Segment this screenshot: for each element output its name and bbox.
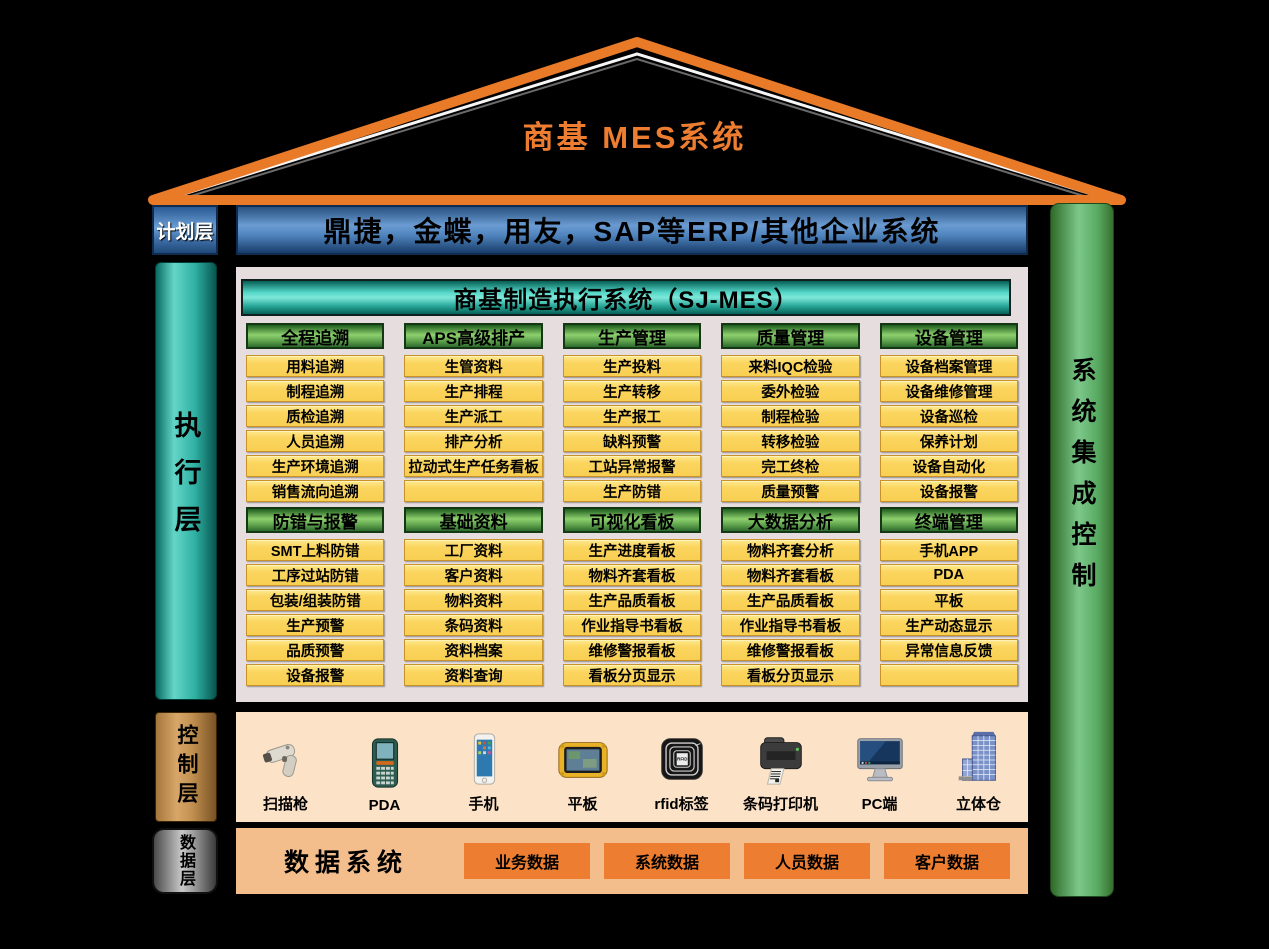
device: PC端: [830, 712, 929, 822]
module-item: 条码资料: [404, 614, 542, 636]
data-box: 业务数据: [464, 843, 590, 879]
module-item: 生产品质看板: [563, 589, 701, 611]
device-label: 手机: [468, 793, 498, 814]
execution-layer-label: 执行层: [155, 262, 217, 700]
device: 平板: [533, 712, 632, 822]
module-item: 生产环境追溯: [246, 455, 384, 477]
module-item: 设备自动化: [880, 455, 1018, 477]
diagram-title: 商基 MES系统: [0, 112, 1269, 157]
module-item: [880, 664, 1018, 686]
module-item: [404, 480, 542, 502]
module-item: SMT上料防错: [246, 539, 384, 561]
group-header: 全程追溯: [246, 323, 384, 349]
barcode-printer-icon: [752, 725, 810, 793]
module-item: 生产品质看板: [721, 589, 859, 611]
device-label: PC端: [862, 793, 898, 814]
device-label: 立体仓: [956, 793, 1001, 814]
system-integration-label: 系统集成控制: [1064, 357, 1100, 603]
module-item: 生产防错: [563, 480, 701, 502]
module-item: 工厂资料: [404, 539, 542, 561]
module-item: 资料档案: [404, 639, 542, 661]
pc-icon: [851, 725, 909, 793]
module-item: 用料追溯: [246, 355, 384, 377]
module-item: 人员追溯: [246, 430, 384, 452]
module-row-1: 全程追溯用料追溯制程追溯质检追溯人员追溯生产环境追溯销售流向追溯APS高级排产生…: [246, 323, 1018, 505]
module-item: 生产预警: [246, 614, 384, 636]
module-item: PDA: [880, 564, 1018, 586]
control-panel: 扫描枪PDA手机平板RFIDrfid标签条码打印机PC端立体仓: [236, 712, 1028, 822]
data-box: 系统数据: [604, 843, 730, 879]
module-item: 设备档案管理: [880, 355, 1018, 377]
device-label: 平板: [567, 793, 597, 814]
module-item: 物料资料: [404, 589, 542, 611]
module-item: 工站异常报警: [563, 455, 701, 477]
planning-layer-label: 计划层: [152, 205, 218, 255]
module-item: 拉动式生产任务看板: [404, 455, 542, 477]
rfid-tag-icon: RFID: [653, 725, 711, 793]
mes-architecture-diagram: 商基 MES系统 计划层 鼎捷，金蝶，用友，SAP等ERP/其他企业系统 执行层…: [0, 0, 1269, 949]
module-group: 全程追溯用料追溯制程追溯质检追溯人员追溯生产环境追溯销售流向追溯: [246, 323, 384, 505]
module-group: 质量管理来料IQC检验委外检验制程检验转移检验完工终检质量预警: [721, 323, 859, 505]
module-item: 客户资料: [404, 564, 542, 586]
data-panel: 数据系统 业务数据系统数据人员数据客户数据: [236, 828, 1028, 894]
scanner-gun-icon: [257, 725, 315, 793]
module-item: 生产转移: [563, 380, 701, 402]
data-layer-label-text: 数据层: [173, 834, 197, 888]
module-item: 排产分析: [404, 430, 542, 452]
module-item: 生产排程: [404, 380, 542, 402]
data-box: 客户数据: [884, 843, 1010, 879]
warehouse-icon: [950, 725, 1008, 793]
data-layer-label: 数据层: [152, 828, 218, 894]
group-header: 可视化看板: [563, 507, 701, 533]
module-item: 转移检验: [721, 430, 859, 452]
device: 手机: [434, 712, 533, 822]
module-item: 设备维修管理: [880, 380, 1018, 402]
execution-layer-label-text: 执行层: [167, 411, 206, 552]
sjmes-header: 商基制造执行系统（SJ-MES）: [241, 279, 1011, 316]
group-header: 大数据分析: [721, 507, 859, 533]
module-item: 生产报工: [563, 405, 701, 427]
module-item: 维修警报看板: [721, 639, 859, 661]
module-item: 异常信息反馈: [880, 639, 1018, 661]
device: RFIDrfid标签: [632, 712, 731, 822]
module-item: 工序过站防错: [246, 564, 384, 586]
device-label: rfid标签: [654, 793, 708, 814]
module-row-2: 防错与报警SMT上料防错工序过站防错包装/组装防错生产预警品质预警设备报警基础资…: [246, 507, 1018, 689]
group-header: 基础资料: [404, 507, 542, 533]
module-item: 缺料预警: [563, 430, 701, 452]
module-item: 维修警报看板: [563, 639, 701, 661]
device: 条码打印机: [731, 712, 830, 822]
module-item: 生产动态显示: [880, 614, 1018, 636]
device: PDA: [335, 712, 434, 822]
module-group: 大数据分析物料齐套分析物料齐套看板生产品质看板作业指导书看板维修警报看板看板分页…: [721, 507, 859, 689]
module-item: 质量预警: [721, 480, 859, 502]
module-group: 防错与报警SMT上料防错工序过站防错包装/组装防错生产预警品质预警设备报警: [246, 507, 384, 689]
module-item: 手机APP: [880, 539, 1018, 561]
control-layer-label: 控制层: [155, 712, 217, 822]
module-item: 物料齐套看板: [563, 564, 701, 586]
module-group: 终端管理手机APPPDA平板生产动态显示异常信息反馈: [880, 507, 1018, 689]
module-group: 生产管理生产投料生产转移生产报工缺料预警工站异常报警生产防错: [563, 323, 701, 505]
roof-outline: [0, 0, 1269, 215]
group-header: 终端管理: [880, 507, 1018, 533]
module-item: 制程追溯: [246, 380, 384, 402]
module-item: 保养计划: [880, 430, 1018, 452]
data-box-list: 业务数据系统数据人员数据客户数据: [464, 843, 1010, 879]
module-group: 基础资料工厂资料客户资料物料资料条码资料资料档案资料查询: [404, 507, 542, 689]
data-system-title: 数据系统: [236, 843, 456, 879]
module-item: 生产派工: [404, 405, 542, 427]
module-group: 可视化看板生产进度看板物料齐套看板生产品质看板作业指导书看板维修警报看板看板分页…: [563, 507, 701, 689]
module-item: 质检追溯: [246, 405, 384, 427]
module-group: APS高级排产生管资料生产排程生产派工排产分析拉动式生产任务看板: [404, 323, 542, 505]
control-layer-label-text: 控制层: [171, 724, 201, 811]
module-item: 完工终检: [721, 455, 859, 477]
group-header: APS高级排产: [404, 323, 542, 349]
module-item: 包装/组装防错: [246, 589, 384, 611]
tablet-icon: [554, 725, 612, 793]
module-item: 来料IQC检验: [721, 355, 859, 377]
smartphone-icon: [455, 725, 513, 793]
device: 扫描枪: [236, 712, 335, 822]
module-item: 设备报警: [880, 480, 1018, 502]
data-box: 人员数据: [744, 843, 870, 879]
device: 立体仓: [929, 712, 1028, 822]
system-integration-bar: 系统集成控制: [1050, 203, 1114, 897]
module-item: 设备巡检: [880, 405, 1018, 427]
module-item: 平板: [880, 589, 1018, 611]
module-item: 生产进度看板: [563, 539, 701, 561]
group-header: 生产管理: [563, 323, 701, 349]
module-item: 生产投料: [563, 355, 701, 377]
module-item: 作业指导书看板: [563, 614, 701, 636]
module-item: 生管资料: [404, 355, 542, 377]
svg-text:RFID: RFID: [677, 757, 688, 762]
device-label: 条码打印机: [743, 793, 818, 814]
module-item: 制程检验: [721, 405, 859, 427]
execution-panel: 商基制造执行系统（SJ-MES） 全程追溯用料追溯制程追溯质检追溯人员追溯生产环…: [236, 267, 1028, 702]
module-item: 物料齐套分析: [721, 539, 859, 561]
module-item: 看板分页显示: [721, 664, 859, 686]
module-item: 销售流向追溯: [246, 480, 384, 502]
module-item: 设备报警: [246, 664, 384, 686]
group-header: 防错与报警: [246, 507, 384, 533]
device-label: 扫描枪: [263, 793, 308, 814]
module-item: 看板分页显示: [563, 664, 701, 686]
pda-icon: [356, 729, 414, 797]
group-header: 设备管理: [880, 323, 1018, 349]
module-item: 作业指导书看板: [721, 614, 859, 636]
erp-systems-banner: 鼎捷，金蝶，用友，SAP等ERP/其他企业系统: [236, 205, 1028, 255]
module-item: 资料查询: [404, 664, 542, 686]
module-item: 物料齐套看板: [721, 564, 859, 586]
device-label: PDA: [369, 797, 401, 814]
module-item: 委外检验: [721, 380, 859, 402]
module-item: 品质预警: [246, 639, 384, 661]
group-header: 质量管理: [721, 323, 859, 349]
module-group: 设备管理设备档案管理设备维修管理设备巡检保养计划设备自动化设备报警: [880, 323, 1018, 505]
